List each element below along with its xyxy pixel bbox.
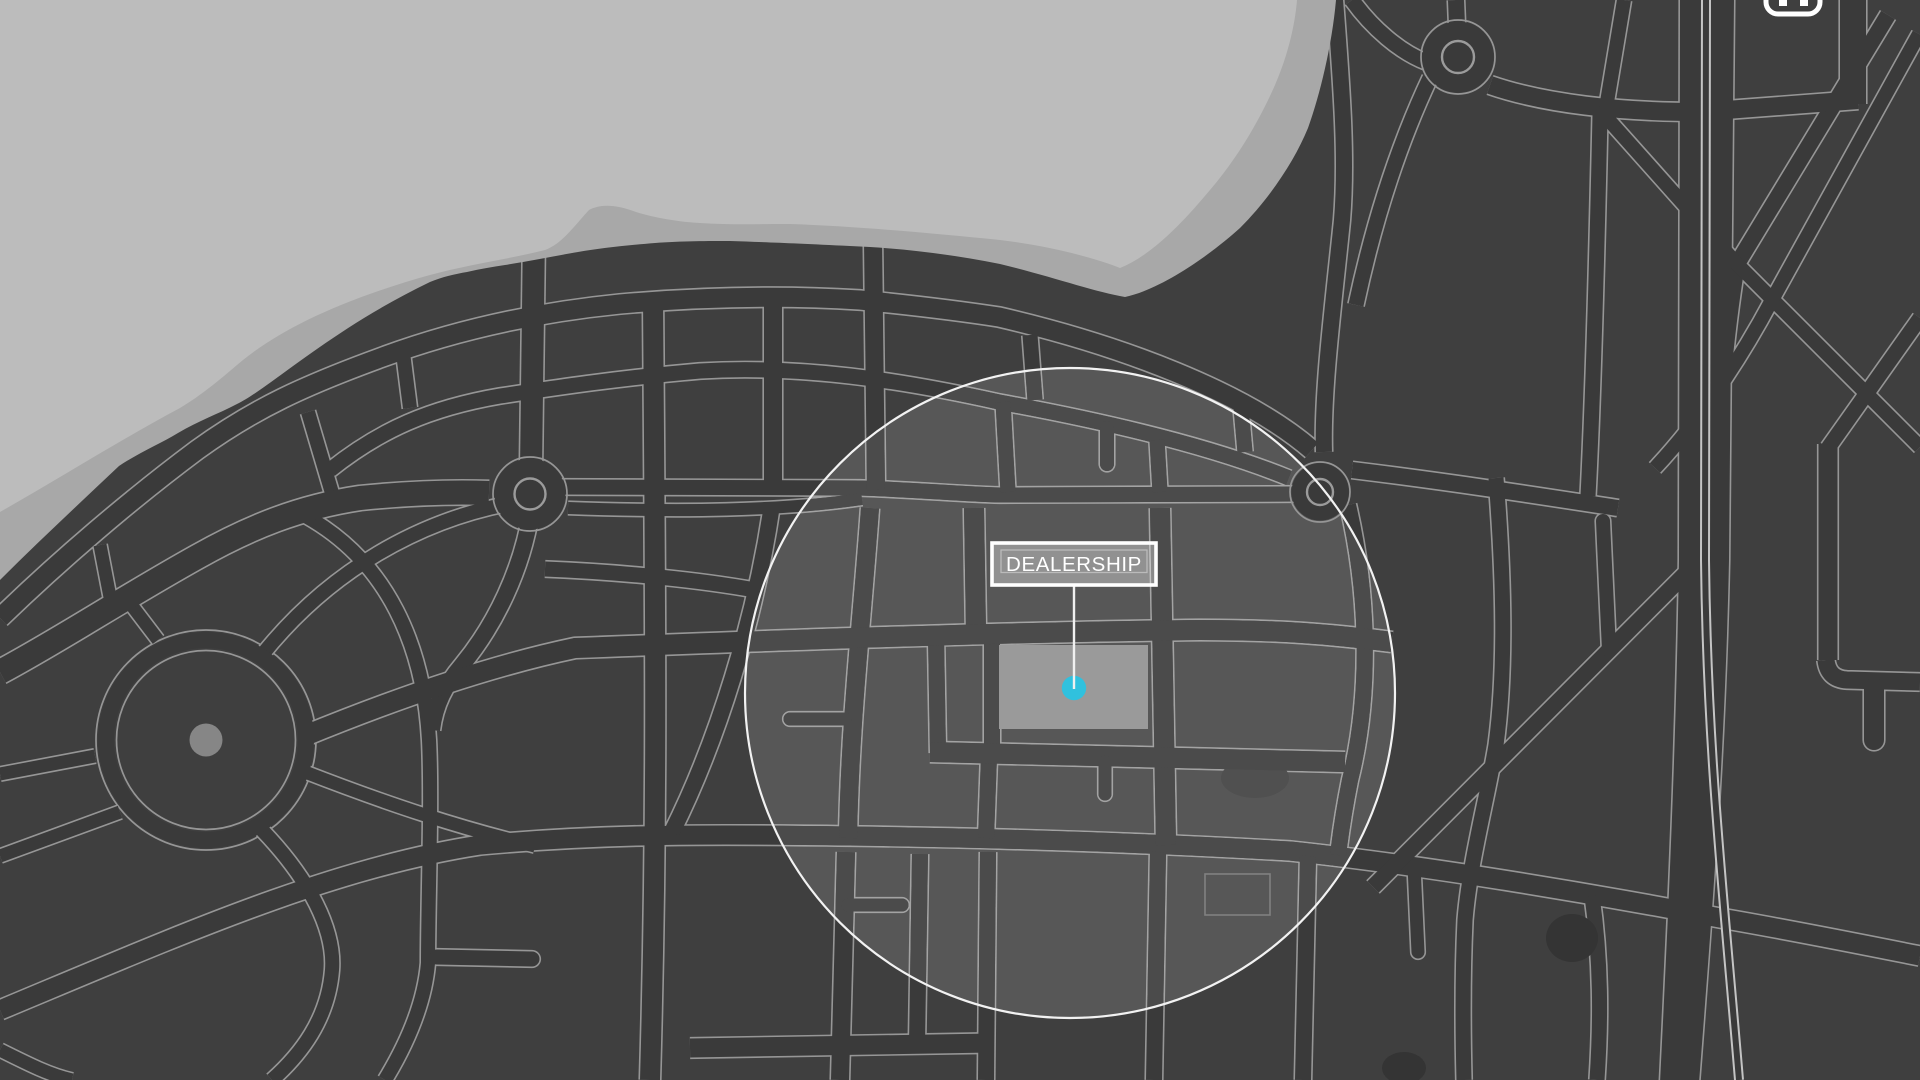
svg-text:DEALERSHIP: DEALERSHIP [1006,553,1142,576]
